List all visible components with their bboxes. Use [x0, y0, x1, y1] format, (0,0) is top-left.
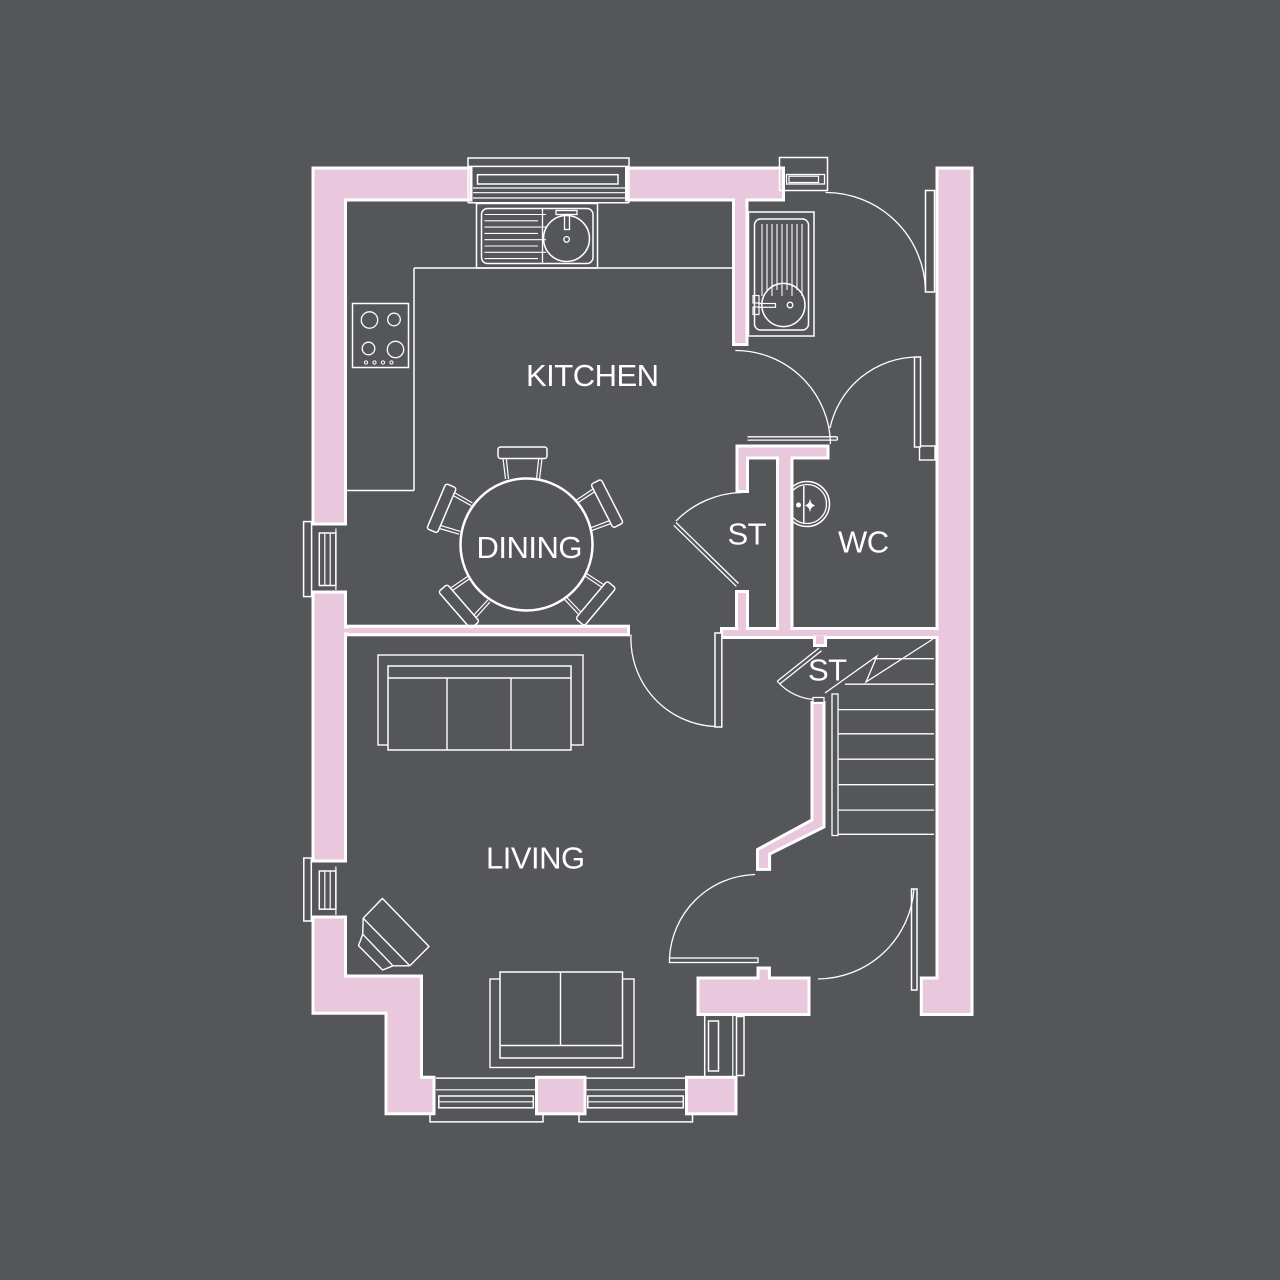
svg-text:ST: ST	[728, 517, 767, 552]
svg-text:LIVING: LIVING	[486, 841, 585, 876]
svg-text:ST: ST	[808, 653, 847, 688]
svg-text:KITCHEN: KITCHEN	[526, 358, 659, 393]
svg-text:WC: WC	[838, 525, 889, 560]
svg-text:DINING: DINING	[477, 530, 583, 565]
